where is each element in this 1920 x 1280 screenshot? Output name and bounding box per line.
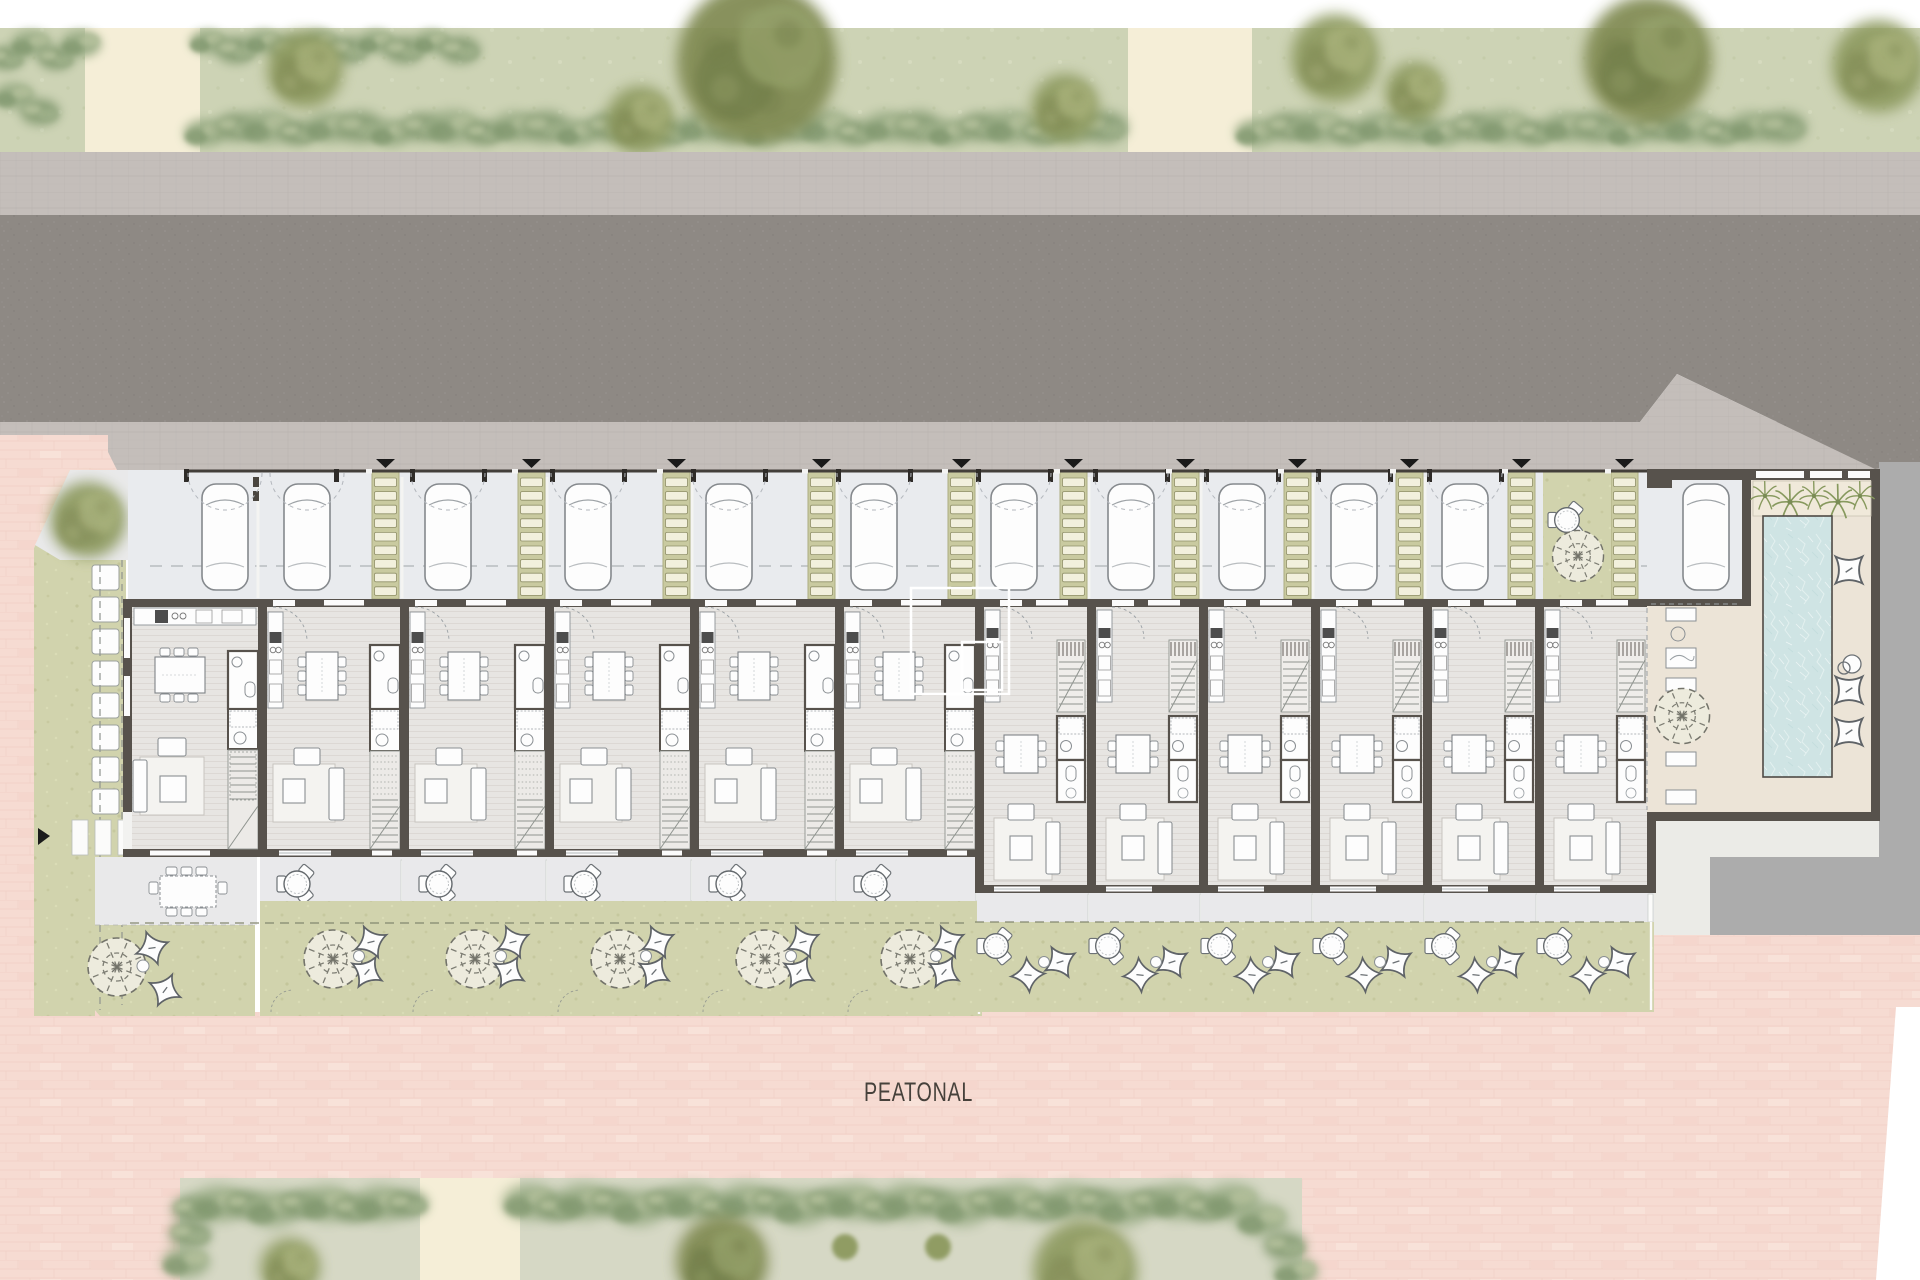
svg-text:PEATONAL: PEATONAL — [864, 1078, 973, 1108]
